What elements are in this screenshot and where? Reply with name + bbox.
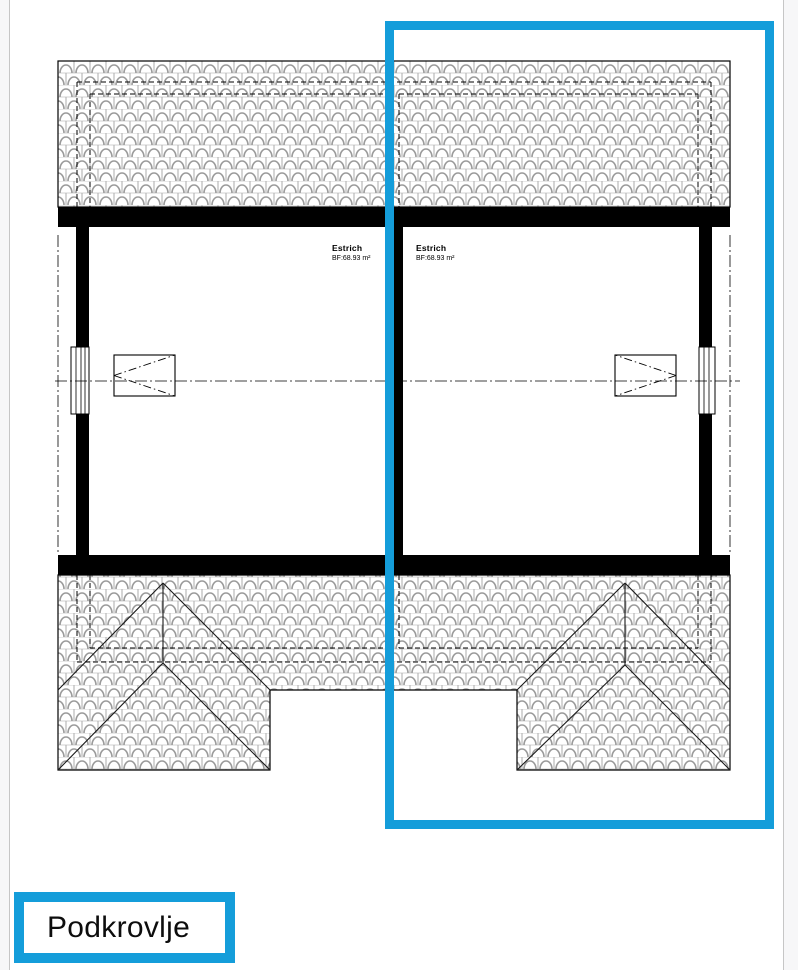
- room-name: Estrich: [332, 244, 371, 254]
- selection-rectangle[interactable]: [385, 21, 774, 829]
- floor-label-button[interactable]: Podkrovlje: [14, 892, 235, 963]
- floor-label-text: Podkrovlje: [47, 911, 190, 945]
- opening-symbol-left: [114, 355, 175, 396]
- wall-left-lower: [76, 414, 89, 555]
- room-label-left: Estrich BF:68.93 m²: [332, 244, 371, 263]
- wall-left-upper: [76, 227, 89, 347]
- window-left: [71, 347, 89, 414]
- room-area: BF:68.93 m²: [332, 255, 371, 263]
